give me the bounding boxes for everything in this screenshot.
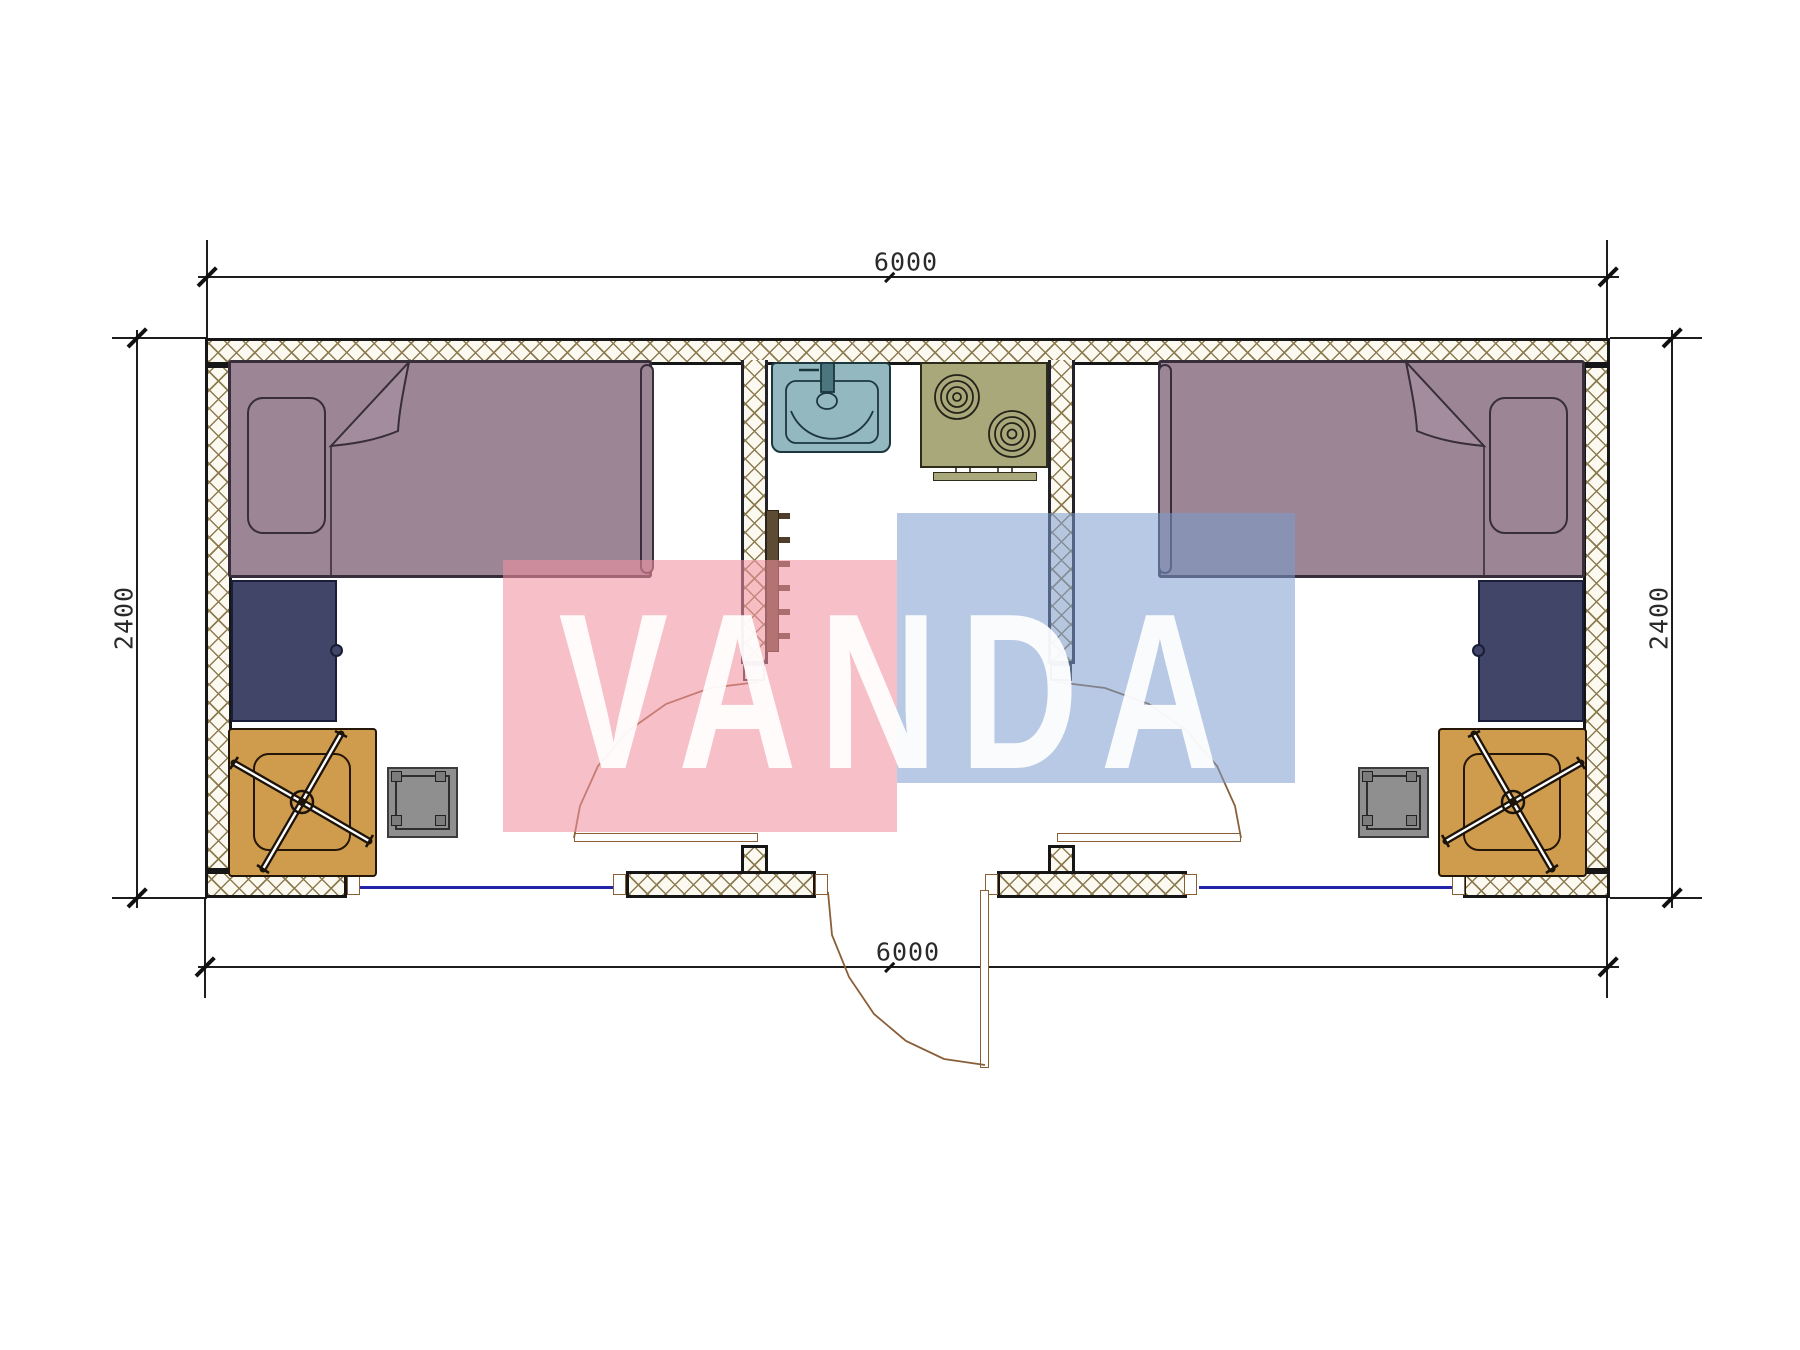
wall-bottom-b: [626, 871, 816, 898]
shelf-bracket: [779, 513, 790, 519]
desk-knob-left: [330, 644, 343, 657]
door-arc-entrance: [828, 892, 985, 1065]
stool-leg: [391, 771, 402, 782]
dim-label-left: 2400: [110, 586, 139, 650]
door-leaf-right-room: [1057, 833, 1241, 842]
dim-label-bottom: 6000: [876, 938, 940, 967]
stool-leg: [435, 815, 446, 826]
extension-line: [1610, 897, 1702, 899]
stool-leg: [391, 815, 402, 826]
pillow-left: [247, 397, 326, 534]
door-leaf-left-room: [574, 833, 758, 842]
door-jamb: [815, 874, 828, 895]
stool-leg: [1362, 815, 1373, 826]
window-jamb: [347, 874, 360, 895]
watermark-text: VANDA: [559, 581, 1242, 803]
extension-line: [206, 240, 208, 338]
extension-line: [1610, 337, 1702, 339]
stool-leg: [1406, 815, 1417, 826]
dim-label-top: 6000: [874, 248, 938, 277]
window-jamb: [613, 874, 626, 895]
dim-label-right: 2400: [1645, 586, 1674, 650]
sink: [771, 362, 891, 453]
chair-seat-right: [1463, 753, 1561, 851]
extension-line: [112, 337, 207, 339]
window-jamb: [1184, 874, 1197, 895]
wall-bottom-c: [997, 871, 1187, 898]
stool-leg: [1362, 771, 1373, 782]
extension-line: [1606, 240, 1608, 338]
window-jamb: [1452, 874, 1465, 895]
floorplan-canvas: 6000 6000 2400 2400: [0, 0, 1800, 1350]
chair-seat-left: [253, 753, 351, 851]
wall-stub-right: [1048, 845, 1075, 874]
bed-footboard-left: [640, 364, 654, 574]
stove-handle: [933, 472, 1037, 481]
desk-right: [1478, 580, 1584, 722]
extension-line: [204, 898, 206, 998]
extension-line: [1606, 898, 1608, 998]
shelf-bracket: [779, 537, 790, 543]
extension-line: [112, 897, 207, 899]
wall-right: [1583, 365, 1610, 871]
desk-knob-right: [1472, 644, 1485, 657]
stool-leg: [435, 771, 446, 782]
desk-left: [231, 580, 337, 722]
stool-leg: [1406, 771, 1417, 782]
stove: [920, 362, 1048, 468]
door-leaf-entrance: [980, 890, 989, 1068]
wall-stub-left: [741, 845, 768, 874]
pillow-right: [1489, 397, 1568, 534]
window-right: [1199, 886, 1452, 889]
window-left: [360, 886, 613, 889]
